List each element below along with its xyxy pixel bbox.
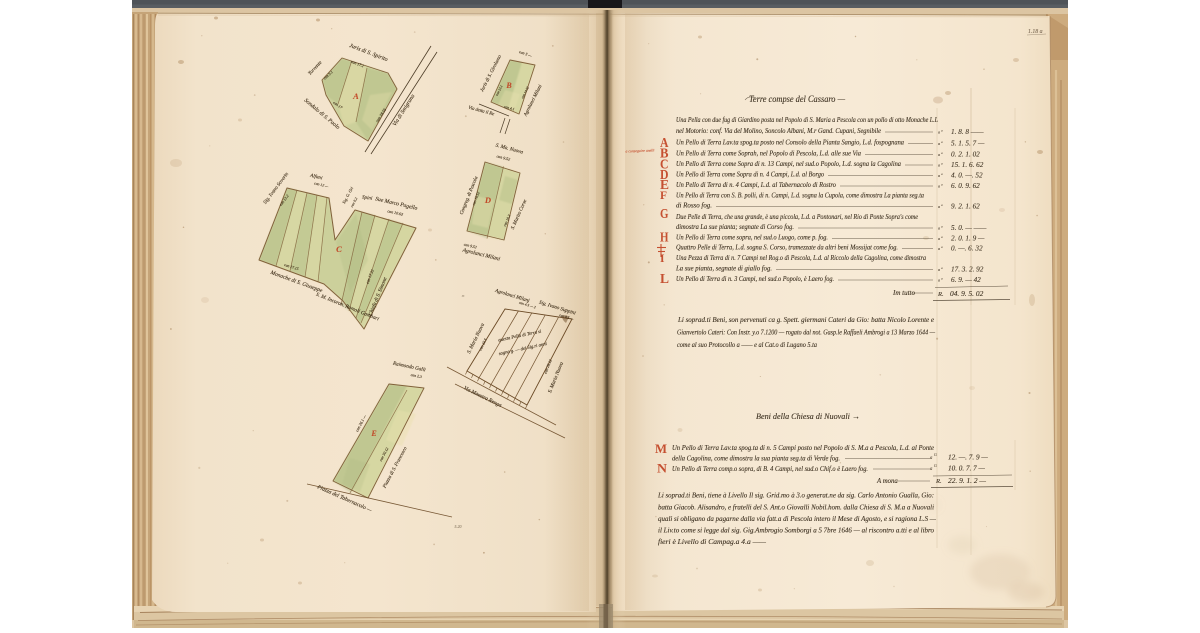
svg-text:a: a <box>938 152 940 157</box>
svg-text:Terre compse del Cassaro —: Terre compse del Cassaro — <box>749 94 846 104</box>
svg-text:22. 9. 1. 2 —: 22. 9. 1. 2 — <box>948 476 986 485</box>
svg-text:a: a <box>941 129 943 133</box>
svg-text:04. 9. 5. 02: 04. 9. 5. 02 <box>950 289 984 298</box>
svg-text:Un Pello di Terra Lav.ta spog.: Un Pello di Terra Lav.ta spog.ta posto n… <box>676 140 905 147</box>
svg-text:R.: R. <box>937 291 944 298</box>
svg-text:0. —. 6. 32: 0. —. 6. 32 <box>951 245 983 253</box>
svg-text:a: a <box>938 226 940 231</box>
svg-text:Una Pella con due fug di Giard: Una Pella con due fug di Giardino posta … <box>676 117 938 124</box>
svg-text:Im tutto: Im tutto <box>892 289 915 297</box>
svg-text:B: B <box>505 81 512 90</box>
svg-text:m: m <box>462 294 465 298</box>
svg-text:Un Pello di Terra di n. 3 Camp: Un Pello di Terra di n. 3 Campi, nel sud… <box>676 276 834 283</box>
svg-text:0. 2. 1. 02: 0. 2. 1. 02 <box>951 151 980 159</box>
svg-text:L: L <box>660 271 669 286</box>
svg-text:a: a <box>941 235 943 239</box>
svg-text:a: a <box>938 184 940 189</box>
svg-text:4. 0. —. 52: 4. 0. —. 52 <box>951 172 983 180</box>
svg-text:a: a <box>941 151 943 155</box>
svg-text:a: a <box>941 225 943 229</box>
svg-text:2. 0. 1. 9 —: 2. 0. 1. 9 — <box>951 235 985 243</box>
svg-text:a: a <box>938 204 940 209</box>
svg-text:Un Pello di Terra Lav.ta spog.: Un Pello di Terra Lav.ta spog.ta di n. 5… <box>672 445 934 452</box>
svg-text:a: a <box>941 245 943 249</box>
svg-text:a: a <box>938 130 940 135</box>
svg-text:Un Pello di Terra di n. 4 Camp: Un Pello di Terra di n. 4 Campi, L.d. al… <box>676 182 837 189</box>
svg-text:Un Pello di Terra come sopra,: Un Pello di Terra come sopra, nel sud.o … <box>676 235 828 242</box>
svg-text:come al suo Protocollo a —— e: come al suo Protocollo a —— e al Cat.o d… <box>677 342 818 349</box>
svg-text:A mona: A mona <box>876 478 898 485</box>
svg-text:a: a <box>941 203 943 207</box>
svg-text:il Liv.to come si legge dal si: il Liv.to come si legge dal sig. Gig.Amb… <box>658 528 935 535</box>
svg-text:6. 0. 9. 62: 6. 0. 9. 62 <box>951 182 980 190</box>
svg-text:quali si obligano da pagarne d: quali si obligano da pagarne dalla via f… <box>658 516 937 523</box>
svg-text:fieri è Livello di Campag.a 4.: fieri è Livello di Campag.a 4.a —— <box>658 539 767 546</box>
svg-text:G: G <box>934 452 937 457</box>
svg-text:5.20: 5.20 <box>455 524 462 529</box>
svg-text:a: a <box>941 183 943 187</box>
svg-text:5. 1. 5. 7 —: 5. 1. 5. 7 — <box>951 140 985 148</box>
svg-text:Beni della Chiesa di Nuovali: Beni della Chiesa di Nuovali → <box>756 412 860 421</box>
svg-text:dimostra La sue pianta; segnat: dimostra La sue pianta; segnate di Corso… <box>676 224 794 231</box>
svg-text:a: a <box>938 267 940 272</box>
svg-text:1. 8. 8 ——: 1. 8. 8 —— <box>951 128 984 136</box>
svg-text:nel Motorio: conf. Via del Mol: nel Motorio: conf. Via del Molino, Sonco… <box>676 128 881 135</box>
svg-text:E: E <box>370 429 376 438</box>
svg-text:Li soprad.ti Beni, son pervenu: Li soprad.ti Beni, son pervenuti ca g. S… <box>677 317 934 324</box>
svg-text:di Rosso fog.: di Rosso fog. <box>676 203 712 210</box>
svg-text:H: H <box>660 230 669 245</box>
svg-text:G: G <box>660 206 669 221</box>
svg-text:a: a <box>938 163 940 168</box>
svg-text:a: a <box>938 246 940 251</box>
svg-text:5. 0. — ——: 5. 0. — —— <box>951 224 987 232</box>
svg-text:12. —. 7. 9 —: 12. —. 7. 9 — <box>948 454 988 462</box>
svg-text:a: a <box>938 236 940 241</box>
svg-text:a: a <box>941 140 943 144</box>
svg-text:C: C <box>336 244 342 254</box>
svg-text:Li soprad.ti Beni, tiene à Liv: Li soprad.ti Beni, tiene à Livello Il si… <box>657 493 934 500</box>
svg-text:a: a <box>941 266 943 270</box>
svg-text:G: G <box>934 463 937 468</box>
svg-text:a: a <box>941 172 943 176</box>
svg-text:F: F <box>660 190 667 202</box>
svg-text:D: D <box>484 195 491 205</box>
svg-text:a: a <box>938 278 940 283</box>
svg-text:a: a <box>941 162 943 166</box>
svg-text:Due Pelle di Terra, che una gr: Due Pelle di Terra, che una grande, è un… <box>675 214 918 221</box>
svg-text:9. 2. 1. 62: 9. 2. 1. 62 <box>951 203 980 211</box>
svg-text:a: a <box>941 277 943 281</box>
svg-text:A: A <box>352 91 359 101</box>
svg-text:Gianvertolo Cateri: Con Instr.: Gianvertolo Cateri: Con Instr. y.o 7.120… <box>677 330 936 337</box>
svg-text:Un Pello di Terra come Sopra d: Un Pello di Terra come Sopra di n. 4 Cam… <box>676 172 825 179</box>
svg-text:R.: R. <box>935 478 942 485</box>
svg-text:17. 3. 2. 92: 17. 3. 2. 92 <box>951 266 984 274</box>
svg-text:M: M <box>655 442 667 456</box>
svg-text:15. 1. 6. 62: 15. 1. 6. 62 <box>951 161 984 169</box>
svg-text:a: a <box>938 141 940 146</box>
svg-text:batta Giacob. Alisandro, e fra: batta Giacob. Alisandro, e fratelli del … <box>658 505 934 512</box>
svg-text:della Cagolina, come dimostra: della Cagolina, come dimostra la sua pia… <box>672 456 840 463</box>
svg-text:N: N <box>657 462 667 476</box>
svg-text:Un Pello di Terra con S. B. po: Un Pello di Terra con S. B. polli, di n.… <box>676 193 925 200</box>
svg-text:6. 9. — 42: 6. 9. — 42 <box>951 276 981 284</box>
svg-text:Un Pello di Terra come Sopra d: Un Pello di Terra come Sopra di n. 13 Ca… <box>676 161 902 168</box>
svg-text:10. 0. 7. 7 —: 10. 0. 7. 7 — <box>948 465 986 473</box>
svg-text:Quattro Pelle di Terra, L.d. s: Quattro Pelle di Terra, L.d. sogna S. Co… <box>676 245 898 252</box>
svg-text:Una Pezza di Terra di n. 7 Cam: Una Pezza di Terra di n. 7 Campi nel Rog… <box>676 255 927 262</box>
svg-text:Un Pello di Terra come Soprah,: Un Pello di Terra come Soprah, nel Popol… <box>676 151 862 158</box>
svg-text:Un Pello di Terra comp.o sopra: Un Pello di Terra comp.o sopra, di B. 4 … <box>672 466 868 473</box>
svg-text:La sue pianta, segnate di gial: La sue pianta, segnate di giallo fog. <box>675 266 772 273</box>
svg-text:a: a <box>938 173 940 178</box>
